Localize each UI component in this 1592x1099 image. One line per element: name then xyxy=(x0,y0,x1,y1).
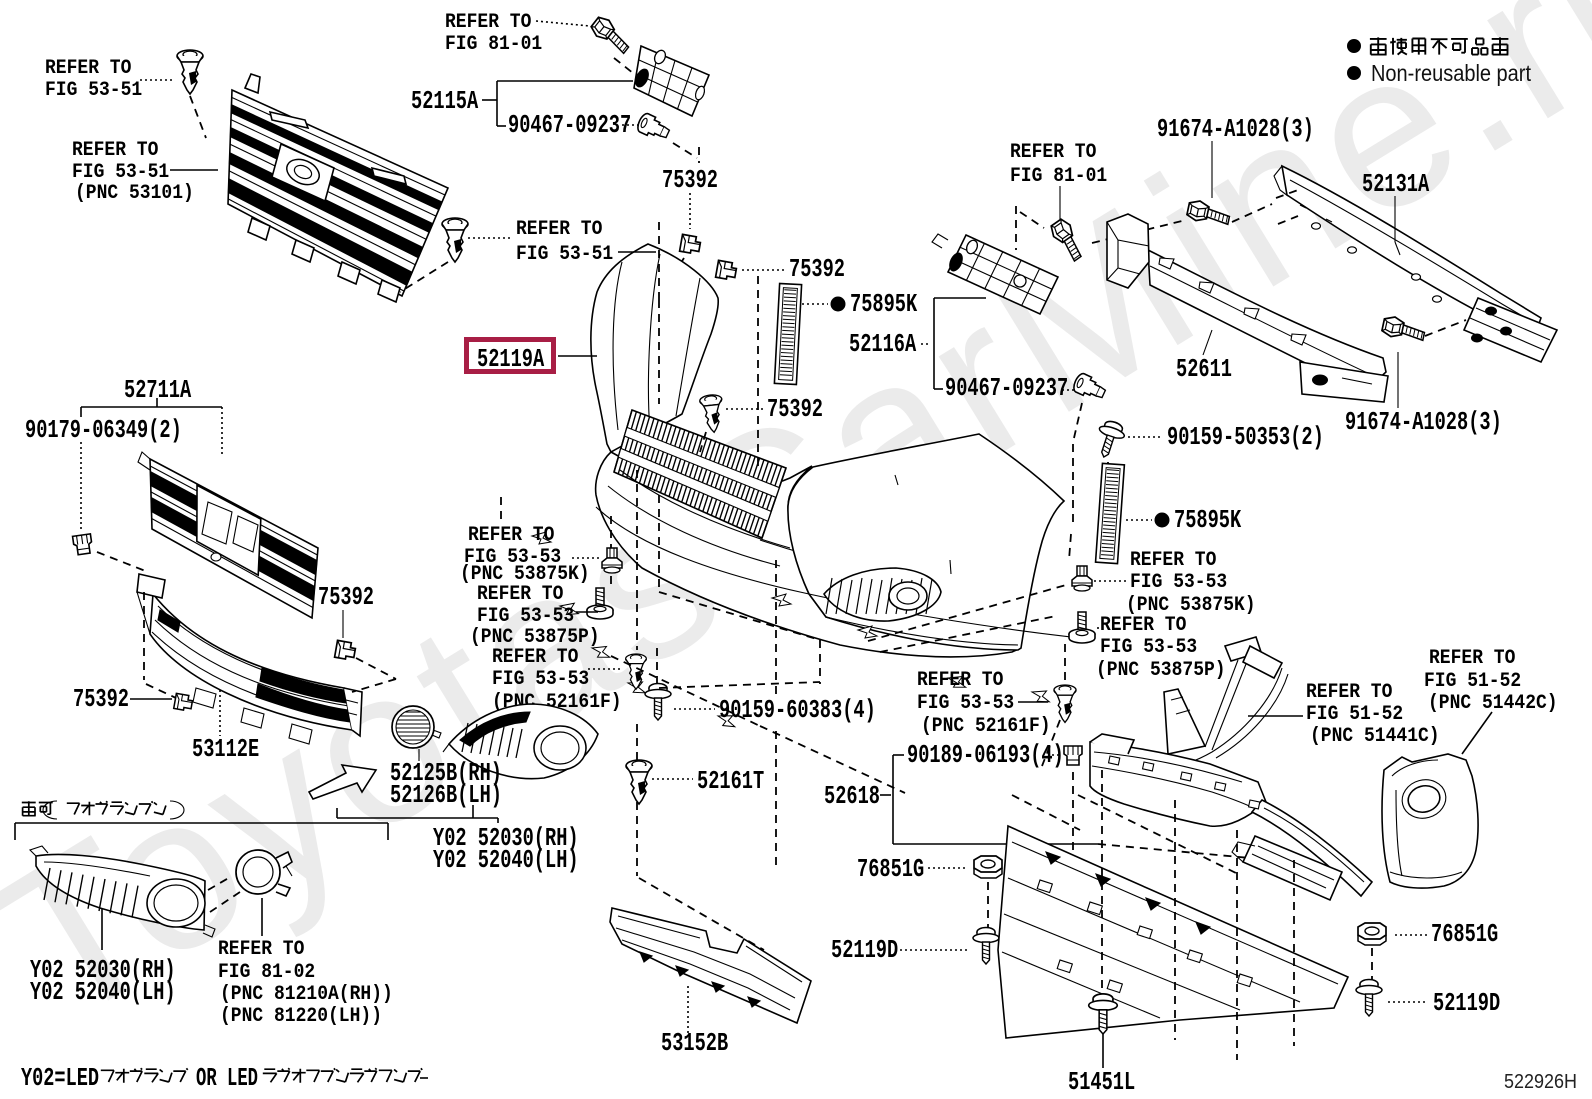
svg-text:52119A: 52119A xyxy=(477,344,544,374)
svg-text:522926H: 522926H xyxy=(1504,1071,1577,1093)
svg-text:REFER TO: REFER TO xyxy=(45,57,131,80)
svg-text:REFER TO: REFER TO xyxy=(72,139,158,162)
svg-text:FIG 53-51: FIG 53-51 xyxy=(516,243,613,266)
svg-text:FIG 51-52: FIG 51-52 xyxy=(1424,670,1521,693)
svg-text:52126B(LH): 52126B(LH) xyxy=(390,780,502,810)
svg-text:(PNC 52161F): (PNC 52161F) xyxy=(921,715,1051,738)
svg-text:REFER TO: REFER TO xyxy=(1100,614,1186,637)
svg-text:Y02 52040(LH): Y02 52040(LH) xyxy=(30,977,176,1007)
svg-text:90189-06193(4): 90189-06193(4) xyxy=(907,740,1064,770)
svg-text:OR LED: OR LED xyxy=(196,1063,258,1093)
svg-text:REFER TO: REFER TO xyxy=(1130,549,1216,572)
svg-text:FIG 53-53: FIG 53-53 xyxy=(1100,636,1197,659)
svg-text:75392: 75392 xyxy=(789,254,845,284)
svg-text:(PNC 51441C): (PNC 51441C) xyxy=(1310,725,1440,748)
svg-text:51451L: 51451L xyxy=(1068,1067,1135,1097)
svg-text:Non-reusable part: Non-reusable part xyxy=(1371,60,1532,86)
svg-text:(PNC 81210A(RH)): (PNC 81210A(RH)) xyxy=(220,983,393,1006)
svg-text:(PNC 81220(LH)): (PNC 81220(LH)) xyxy=(220,1005,382,1028)
svg-text:FIG 53-53: FIG 53-53 xyxy=(492,668,589,691)
svg-text:75392: 75392 xyxy=(73,684,129,714)
svg-text:FIG 53-51: FIG 53-51 xyxy=(45,79,142,102)
svg-text:52611: 52611 xyxy=(1176,354,1232,384)
svg-text:FIG 81-01: FIG 81-01 xyxy=(1010,165,1107,188)
svg-text:75895K: 75895K xyxy=(1174,505,1241,535)
svg-text:90467-09237: 90467-09237 xyxy=(508,110,631,140)
svg-text:90159-50353(2): 90159-50353(2) xyxy=(1167,422,1324,452)
svg-text:52119D: 52119D xyxy=(831,935,898,965)
svg-text:REFER TO: REFER TO xyxy=(917,669,1003,692)
svg-text:52618: 52618 xyxy=(824,781,880,811)
svg-text:53152B: 53152B xyxy=(661,1028,728,1058)
svg-text:FIG 53-53: FIG 53-53 xyxy=(917,692,1014,715)
svg-text:52161T: 52161T xyxy=(697,766,764,796)
svg-text:Y02 52040(LH): Y02 52040(LH) xyxy=(433,845,579,875)
svg-text:53112E: 53112E xyxy=(192,734,259,764)
svg-text:76851G: 76851G xyxy=(1431,919,1498,949)
svg-text:(PNC 53101): (PNC 53101) xyxy=(75,182,194,205)
svg-text:FIG 81-01: FIG 81-01 xyxy=(445,33,542,56)
svg-text:76851G: 76851G xyxy=(857,854,924,884)
svg-text:FIG 53-53: FIG 53-53 xyxy=(1130,571,1227,594)
svg-text:90179-06349(2): 90179-06349(2) xyxy=(25,415,182,445)
svg-text:Y02=LED: Y02=LED xyxy=(21,1063,99,1093)
svg-text:75392: 75392 xyxy=(662,165,718,195)
svg-text:90467-09237: 90467-09237 xyxy=(945,373,1068,403)
svg-text:REFER TO: REFER TO xyxy=(477,583,563,606)
svg-text:75392: 75392 xyxy=(767,394,823,424)
svg-text:(PNC 51442C): (PNC 51442C) xyxy=(1428,692,1558,715)
svg-text:90159-60383(4): 90159-60383(4) xyxy=(719,695,876,725)
svg-text:75895K: 75895K xyxy=(850,289,917,319)
svg-text:52131A: 52131A xyxy=(1362,169,1429,199)
svg-text:52115A: 52115A xyxy=(411,86,478,116)
svg-text:FIG 53-51: FIG 53-51 xyxy=(72,161,169,184)
svg-text:REFER TO: REFER TO xyxy=(516,218,602,241)
svg-text:FIG 51-52: FIG 51-52 xyxy=(1306,703,1403,726)
svg-text:FIG 81-02: FIG 81-02 xyxy=(218,961,315,984)
svg-text:REFER TO: REFER TO xyxy=(1306,681,1392,704)
svg-text:52116A: 52116A xyxy=(849,329,916,359)
svg-text:75392: 75392 xyxy=(318,582,374,612)
svg-text:REFER TO: REFER TO xyxy=(1010,141,1096,164)
svg-text:REFER TO: REFER TO xyxy=(445,11,531,34)
svg-text:REFER TO: REFER TO xyxy=(1429,647,1515,670)
svg-text:REFER TO: REFER TO xyxy=(492,646,578,669)
svg-text:91674-A1028(3): 91674-A1028(3) xyxy=(1157,114,1314,144)
svg-text:REFER TO: REFER TO xyxy=(468,524,554,547)
svg-text:52119D: 52119D xyxy=(1433,988,1500,1018)
svg-text:FIG 53-53: FIG 53-53 xyxy=(477,605,574,628)
svg-text:91674-A1028(3): 91674-A1028(3) xyxy=(1345,407,1502,437)
svg-text:REFER TO: REFER TO xyxy=(218,938,304,961)
svg-text:(PNC 53875P): (PNC 53875P) xyxy=(1096,659,1226,682)
